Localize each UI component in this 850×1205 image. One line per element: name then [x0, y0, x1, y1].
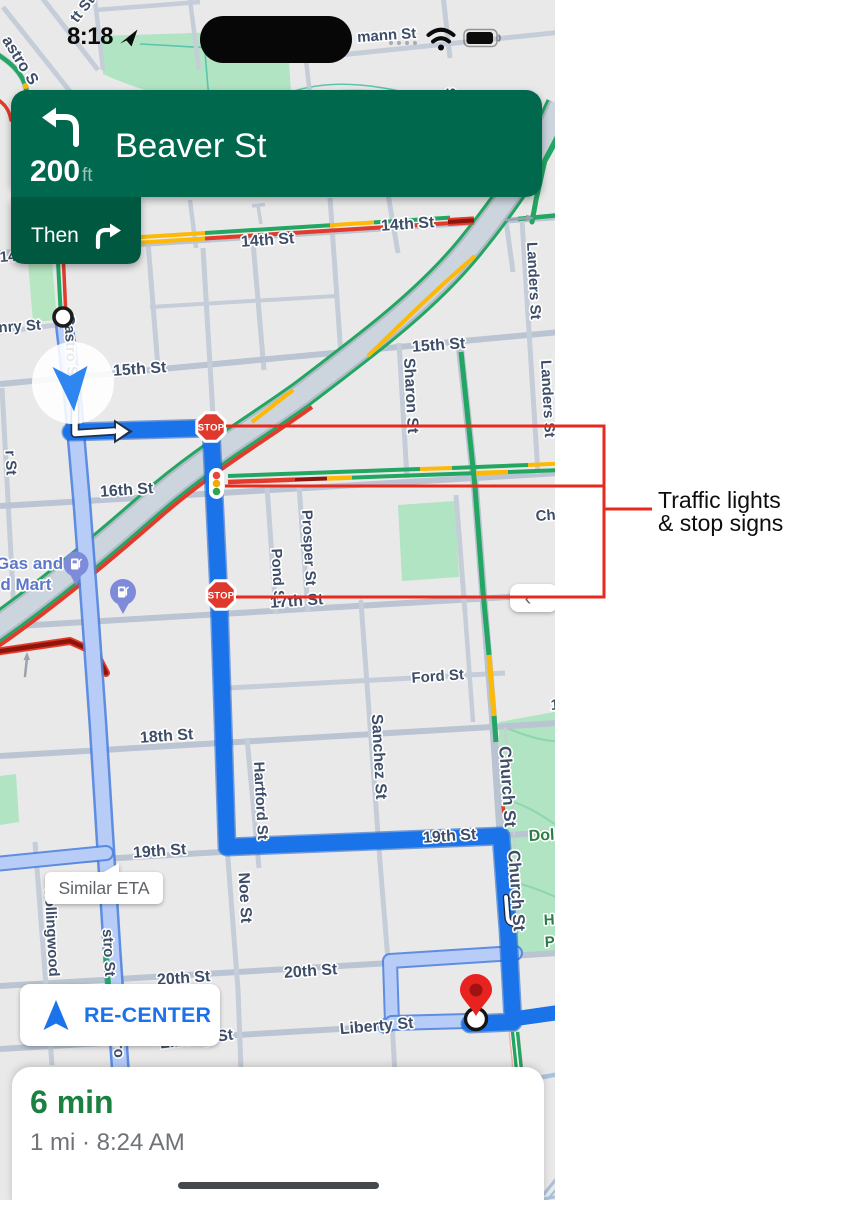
svg-text:Similar ETA: Similar ETA — [58, 878, 149, 898]
svg-text:H: H — [543, 911, 555, 929]
svg-text:P: P — [544, 933, 555, 951]
svg-text:200: 200 — [30, 155, 80, 188]
svg-text:od Mart: od Mart — [0, 575, 52, 594]
svg-text:RE-CENTER: RE-CENTER — [84, 1003, 211, 1027]
svg-text:8:18: 8:18 — [67, 23, 113, 50]
svg-text:Noe St: Noe St — [235, 872, 255, 924]
svg-text:stro St: stro St — [99, 929, 118, 977]
svg-text:ft: ft — [82, 165, 93, 186]
svg-text:STOP: STOP — [198, 422, 225, 433]
svg-text:r St: r St — [1, 450, 19, 476]
svg-text:Beaver St: Beaver St — [115, 127, 267, 165]
svg-text:STOP: STOP — [208, 590, 235, 601]
svg-text:6 min: 6 min — [30, 1084, 114, 1120]
svg-text:1 mi · 8:24 AM: 1 mi · 8:24 AM — [30, 1129, 185, 1156]
svg-text:Gas and: Gas and — [0, 554, 63, 573]
svg-text:Then: Then — [31, 224, 79, 247]
svg-text:& stop signs: & stop signs — [658, 510, 783, 536]
svg-text:‹: ‹ — [525, 588, 532, 610]
svg-text:nry St: nry St — [0, 317, 41, 337]
svg-text:Dol: Dol — [528, 827, 555, 845]
